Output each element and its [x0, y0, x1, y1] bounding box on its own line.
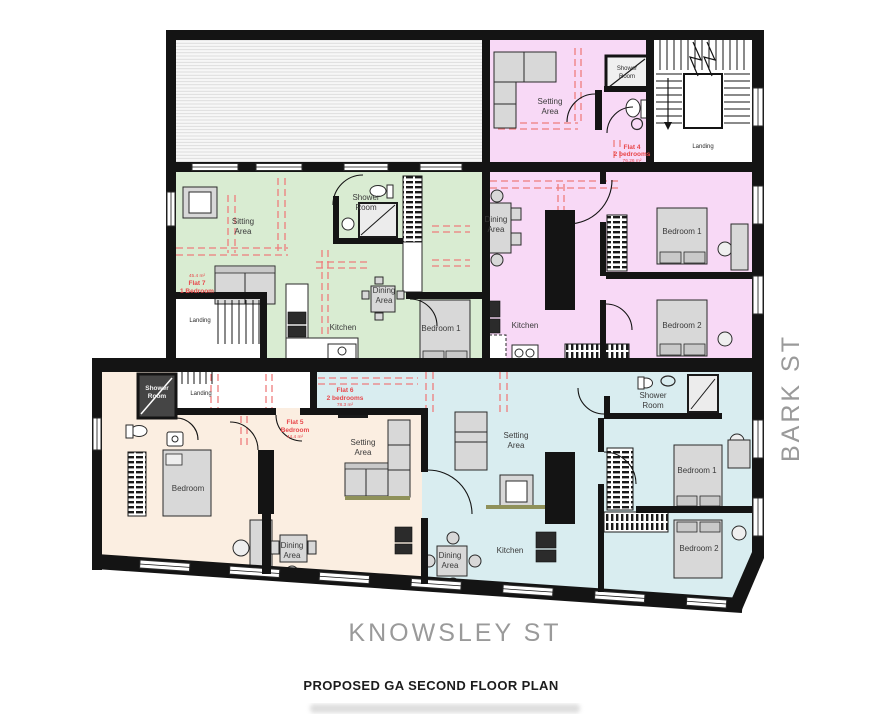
- flat7-sitting-area-label: SittingArea: [232, 217, 254, 236]
- floor-plan-page: SittingArea ShowerRoom DiningArea Kitche…: [0, 0, 886, 714]
- flat5-landing-label: Landing: [190, 391, 211, 397]
- flat6-dining-area-label: DiningArea: [439, 551, 462, 570]
- street-label-knowsley: KNOWSLEY ST: [348, 619, 561, 647]
- flat6-size-label: 78.3 m²: [337, 402, 354, 408]
- flat4-bedroom2-label: Bedroom 2: [662, 321, 702, 330]
- flat6-shower-room-label: ShowerRoom: [639, 391, 666, 410]
- flat7-bedroom1-label: Bedroom 1: [421, 324, 461, 333]
- cutoff-text-smudge: [310, 704, 580, 713]
- flat5-landing-strip: [176, 372, 313, 408]
- flat7-shower-room-label: ShowerRoom: [352, 193, 379, 212]
- flat5-dining-area-label: DiningArea: [281, 541, 304, 560]
- flat6-bedroom2-label: Bedroom 2: [679, 544, 719, 553]
- flat7-dining-area-label: DiningArea: [373, 286, 396, 305]
- stairwell-landing-label: Landing: [692, 144, 713, 150]
- page-title: PROPOSED GA SECOND FLOOR PLAN: [303, 678, 558, 693]
- flat5-size-label: 44.4 m²: [287, 434, 304, 440]
- roof-hatch-area: [170, 33, 487, 168]
- flat4-size-label: 76.26 m²: [623, 158, 642, 164]
- street-label-bark: BARK ST: [777, 334, 805, 462]
- flat7-size-label: 45.4 m²: [189, 273, 206, 279]
- flat7-landing-area: [174, 299, 260, 366]
- flat6-kitchen-label: Kitchen: [497, 546, 524, 555]
- flat4-bedroom1-label: Bedroom 1: [662, 227, 702, 236]
- flat7-landing-label: Landing: [189, 318, 210, 324]
- flat6-bedroom1-label: Bedroom 1: [677, 466, 717, 475]
- flat5-shower-room-label: ShowerRoom: [145, 385, 169, 400]
- flat4-kitchen-label: Kitchen: [512, 321, 539, 330]
- floor-plan-canvas: SittingArea ShowerRoom DiningArea Kitche…: [0, 0, 886, 714]
- flat4-dining-area-label: DiningArea: [485, 215, 508, 234]
- flat5-bedroom-label: Bedroom: [172, 484, 205, 493]
- flat7-kitchen-label: Kitchen: [330, 323, 357, 332]
